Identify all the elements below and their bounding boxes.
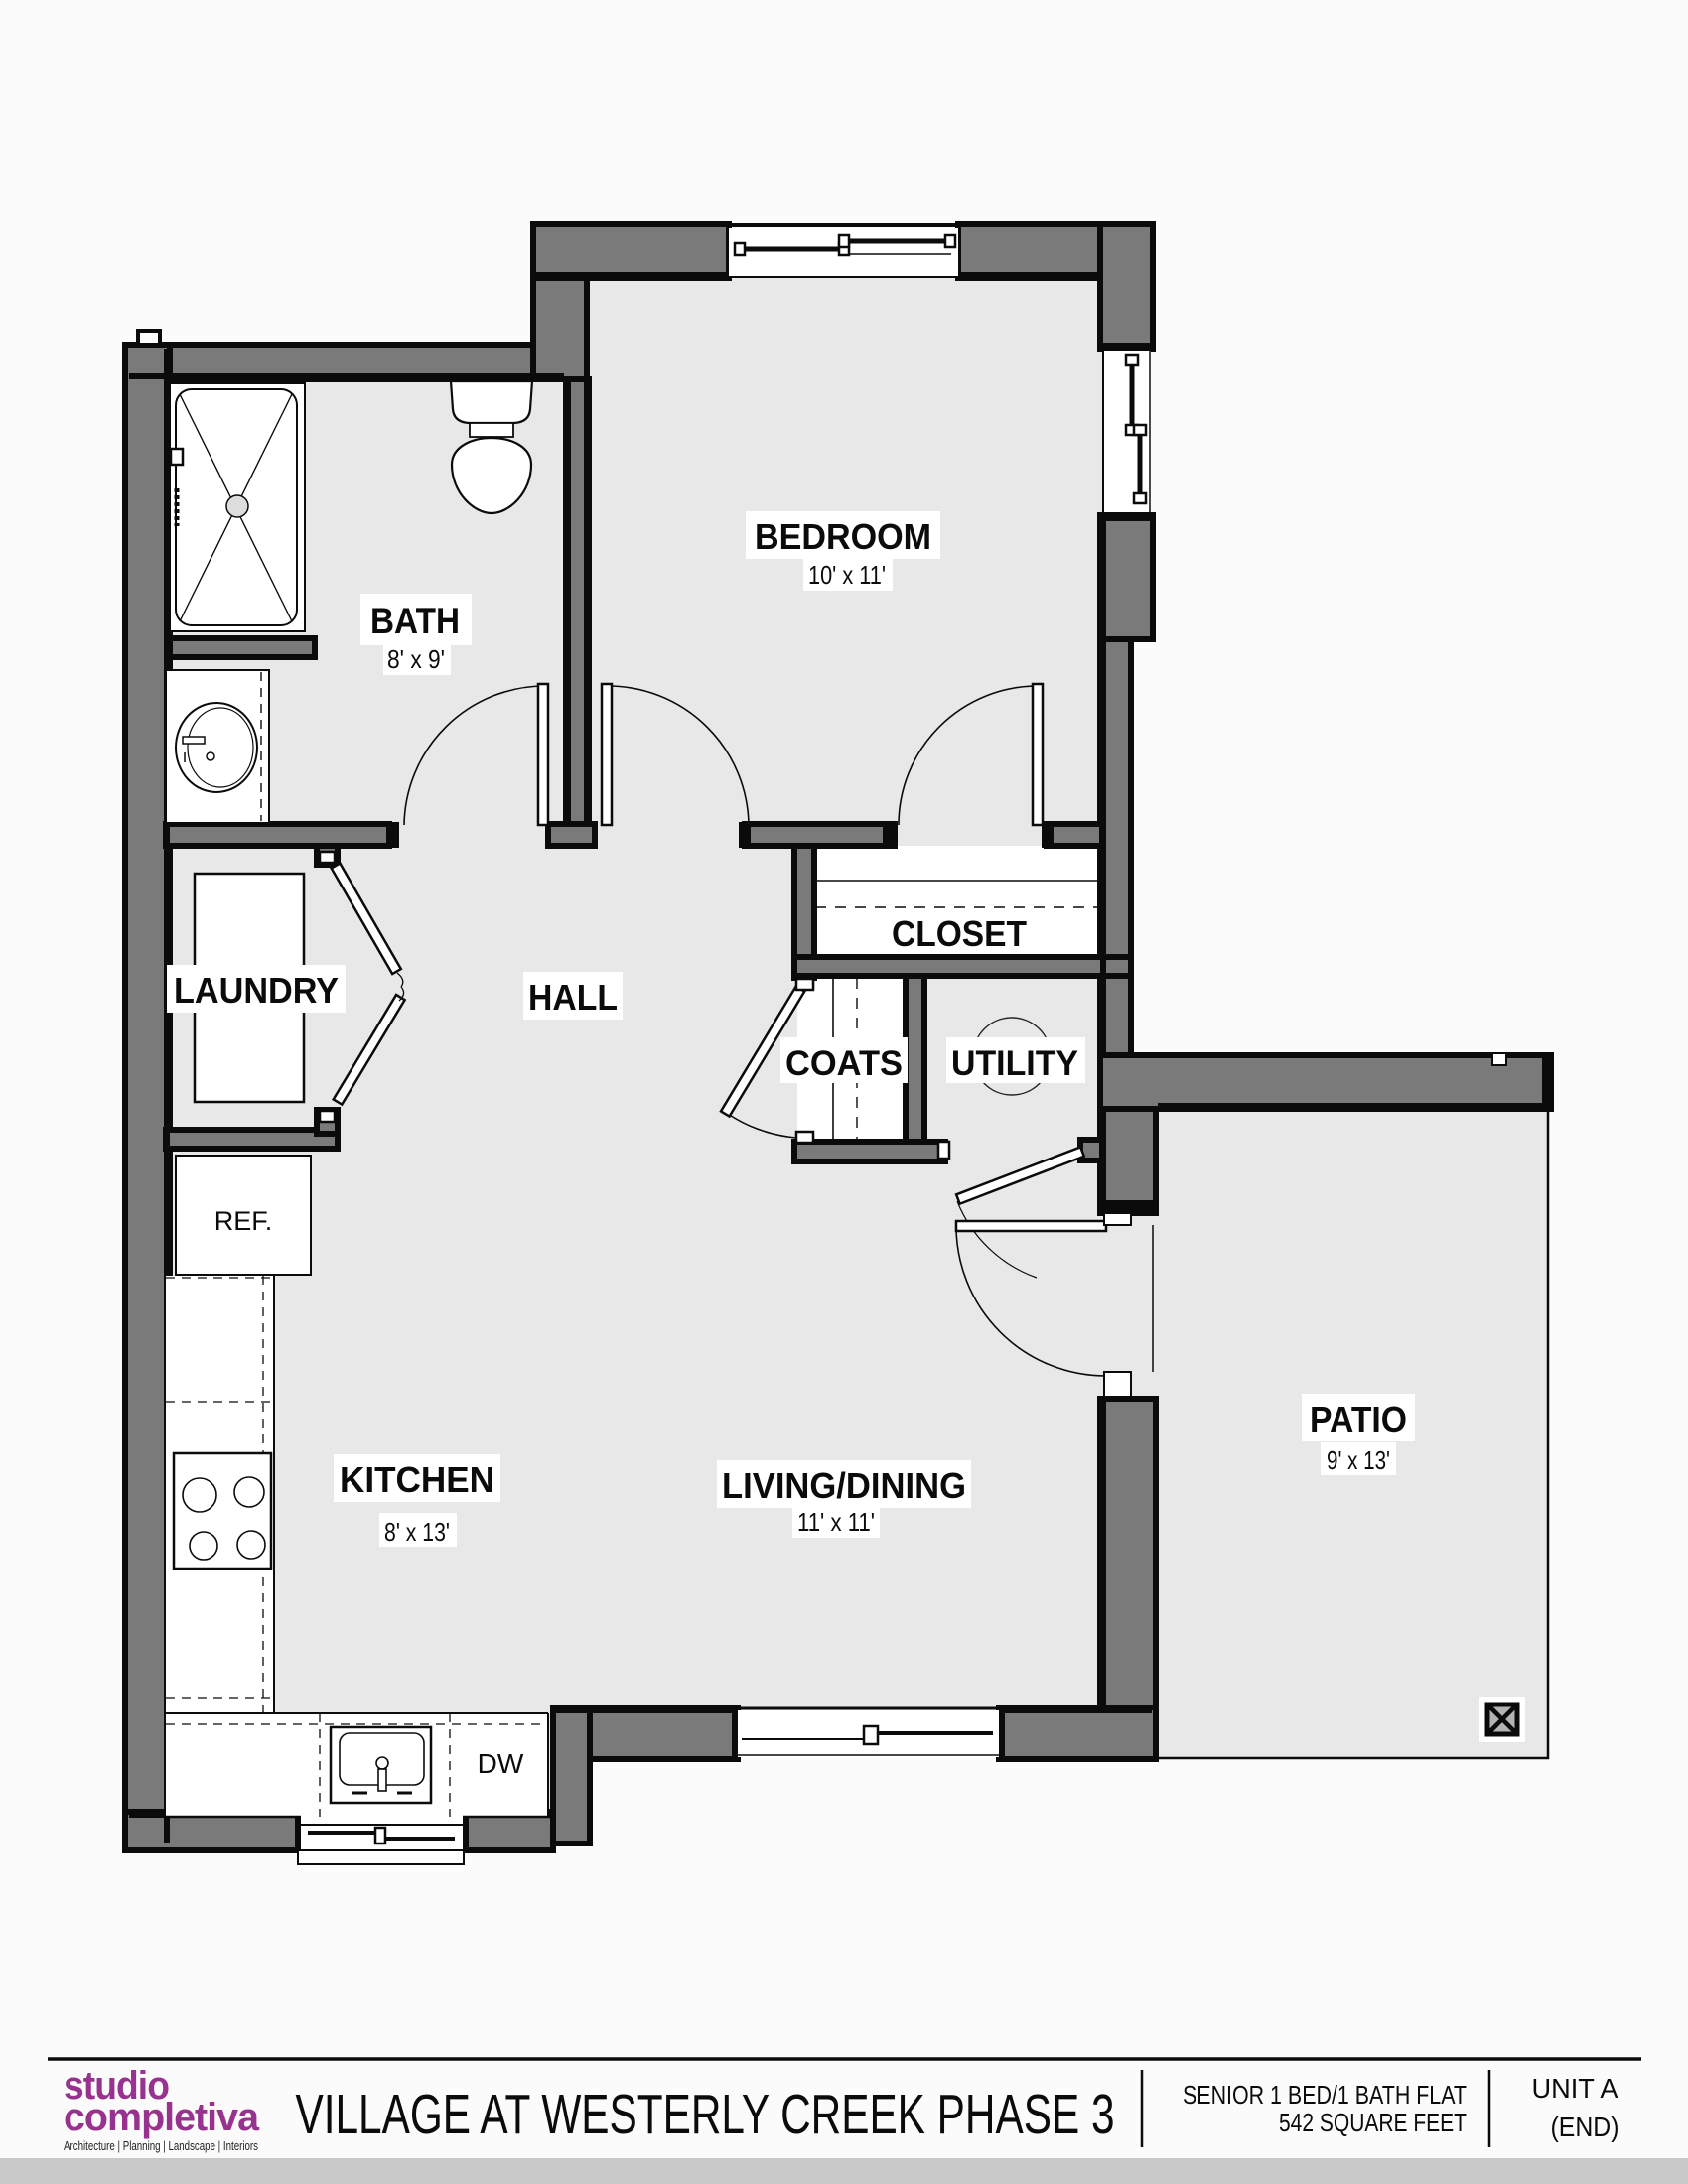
svg-text:REF.: REF. [214,1206,273,1236]
svg-text:VILLAGE AT WESTERLY CREEK PHAS: VILLAGE AT WESTERLY CREEK PHASE 3 [296,2083,1115,2146]
svg-text:8' x 13': 8' x 13' [384,1517,450,1547]
svg-text:HALL: HALL [528,977,618,1018]
svg-text:DW: DW [478,1748,524,1779]
svg-text:COATS: COATS [785,1044,903,1083]
svg-text:PATIO: PATIO [1310,1399,1407,1439]
svg-text:UTILITY: UTILITY [951,1044,1078,1083]
svg-text:9' x 13': 9' x 13' [1327,1445,1390,1475]
svg-text:11' x 11': 11' x 11' [797,1507,875,1537]
svg-text:SENIOR 1 BED/1 BATH FLAT: SENIOR 1 BED/1 BATH FLAT [1183,2080,1467,2110]
svg-text:KITCHEN: KITCHEN [340,1459,494,1500]
svg-text:542 SQUARE FEET: 542 SQUARE FEET [1279,2108,1467,2137]
svg-text:LIVING/DINING: LIVING/DINING [722,1465,966,1506]
svg-text:LAUNDRY: LAUNDRY [174,970,339,1011]
svg-text:CLOSET: CLOSET [892,913,1027,954]
svg-text:BEDROOM: BEDROOM [755,516,931,557]
svg-text:UNIT A: UNIT A [1532,2073,1618,2104]
svg-text:10' x 11': 10' x 11' [808,560,886,590]
svg-text:Architecture | Planning | Land: Architecture | Planning | Landscape | In… [64,2139,258,2153]
svg-text:completiva: completiva [64,2096,260,2139]
svg-text:(END): (END) [1551,2112,1619,2142]
svg-text:8' x 9': 8' x 9' [387,644,445,674]
svg-text:BATH: BATH [370,601,460,641]
